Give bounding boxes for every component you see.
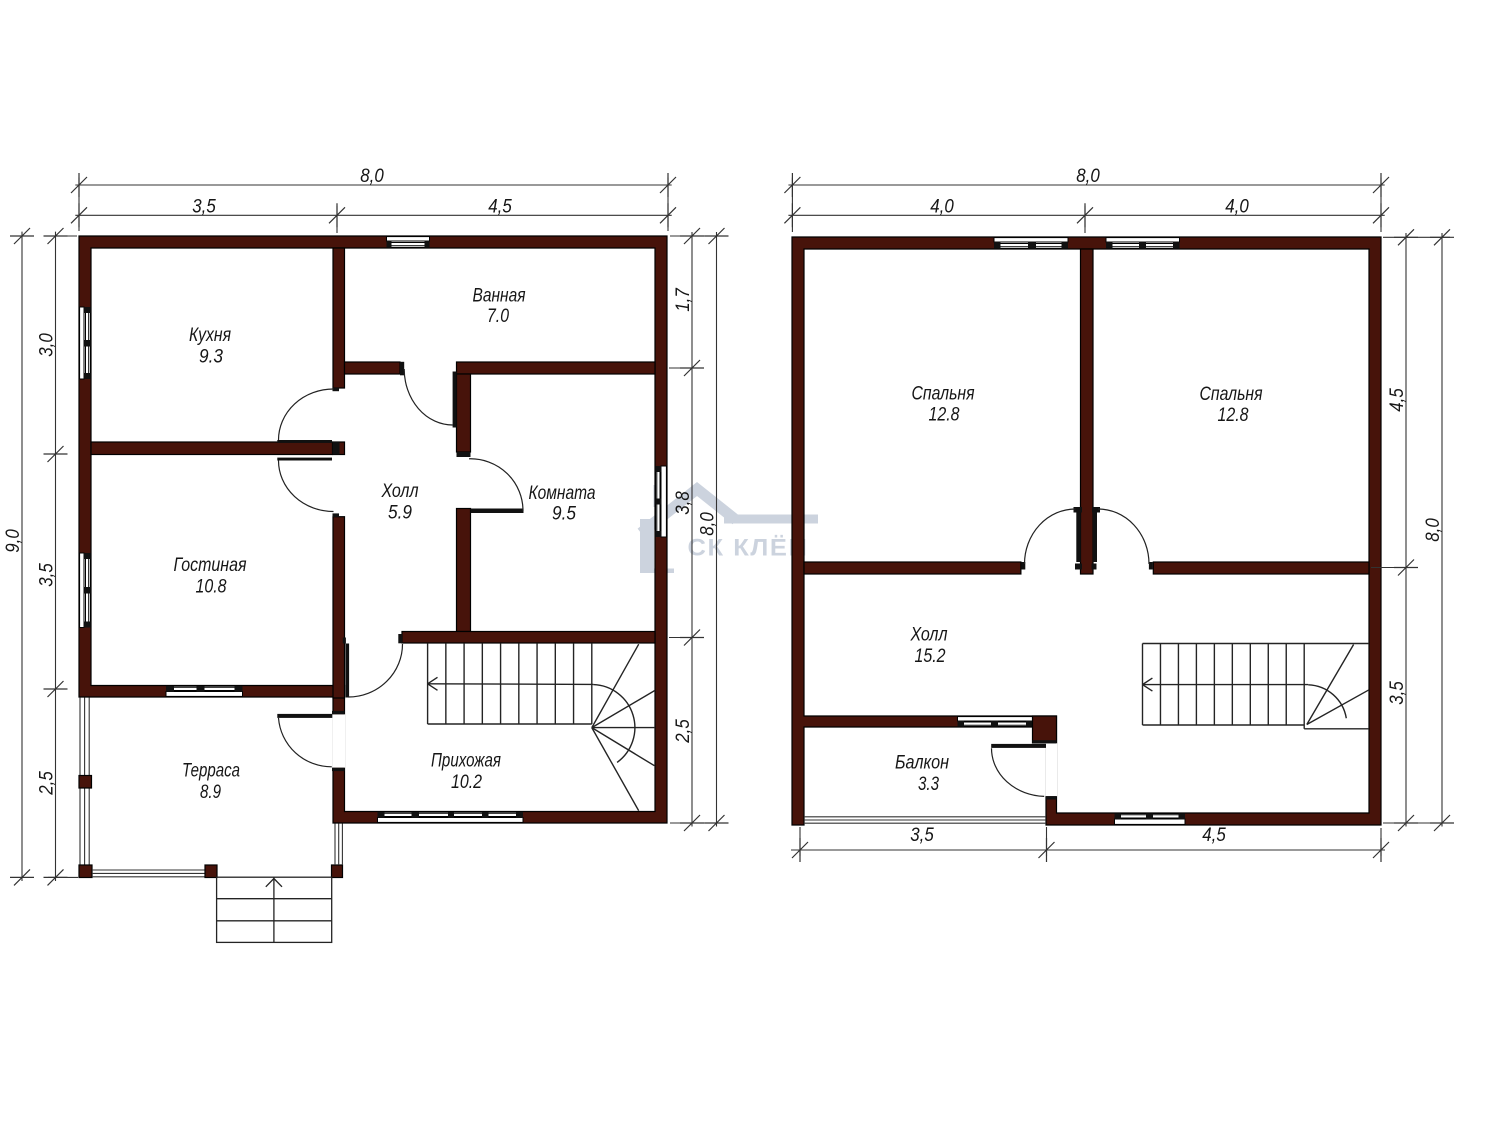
- svg-text:3,5: 3,5: [1387, 681, 1408, 705]
- svg-text:10.2: 10.2: [451, 772, 482, 793]
- svg-text:Холл: Холл: [910, 625, 948, 646]
- svg-text:4,0: 4,0: [1225, 197, 1249, 218]
- svg-text:12.8: 12.8: [1218, 405, 1249, 426]
- svg-text:3,5: 3,5: [37, 563, 58, 587]
- svg-text:4,5: 4,5: [488, 197, 512, 218]
- svg-text:Балкон: Балкон: [895, 753, 949, 774]
- svg-text:Спальня: Спальня: [912, 384, 975, 405]
- svg-text:3.3: 3.3: [918, 774, 939, 795]
- svg-text:9.5: 9.5: [552, 504, 576, 525]
- svg-text:Холл: Холл: [381, 481, 419, 502]
- svg-text:Прихожая: Прихожая: [431, 751, 501, 772]
- svg-text:2,5: 2,5: [37, 771, 58, 796]
- svg-text:4,5: 4,5: [1202, 825, 1226, 846]
- svg-text:8.9: 8.9: [200, 782, 221, 803]
- svg-text:3,5: 3,5: [192, 197, 216, 218]
- svg-text:8,0: 8,0: [698, 512, 719, 536]
- svg-text:Комната: Комната: [529, 483, 596, 504]
- svg-text:4,0: 4,0: [930, 197, 954, 218]
- svg-text:9.3: 9.3: [199, 347, 223, 368]
- svg-text:1,7: 1,7: [673, 287, 694, 312]
- svg-text:15.2: 15.2: [915, 646, 946, 667]
- svg-text:Спальня: Спальня: [1200, 384, 1263, 405]
- svg-text:4,5: 4,5: [1387, 388, 1408, 412]
- svg-text:Кухня: Кухня: [189, 325, 231, 346]
- svg-text:Гостиная: Гостиная: [174, 555, 247, 576]
- svg-text:8,0: 8,0: [1423, 518, 1444, 542]
- svg-text:5.9: 5.9: [388, 503, 412, 524]
- svg-text:8,0: 8,0: [360, 166, 384, 187]
- svg-text:8,0: 8,0: [1076, 166, 1100, 187]
- svg-text:Ванная: Ванная: [473, 286, 526, 307]
- svg-text:3,5: 3,5: [910, 825, 934, 846]
- svg-text:10.8: 10.8: [196, 577, 227, 598]
- svg-text:Терраса: Терраса: [182, 761, 240, 782]
- svg-text:7.0: 7.0: [487, 306, 509, 327]
- svg-text:9,0: 9,0: [3, 529, 24, 553]
- svg-text:3,8: 3,8: [673, 491, 694, 515]
- svg-text:СК КЛЁН: СК КЛЁН: [688, 535, 809, 562]
- svg-text:2,5: 2,5: [673, 719, 694, 744]
- svg-text:12.8: 12.8: [929, 405, 960, 426]
- svg-text:3,0: 3,0: [37, 333, 58, 357]
